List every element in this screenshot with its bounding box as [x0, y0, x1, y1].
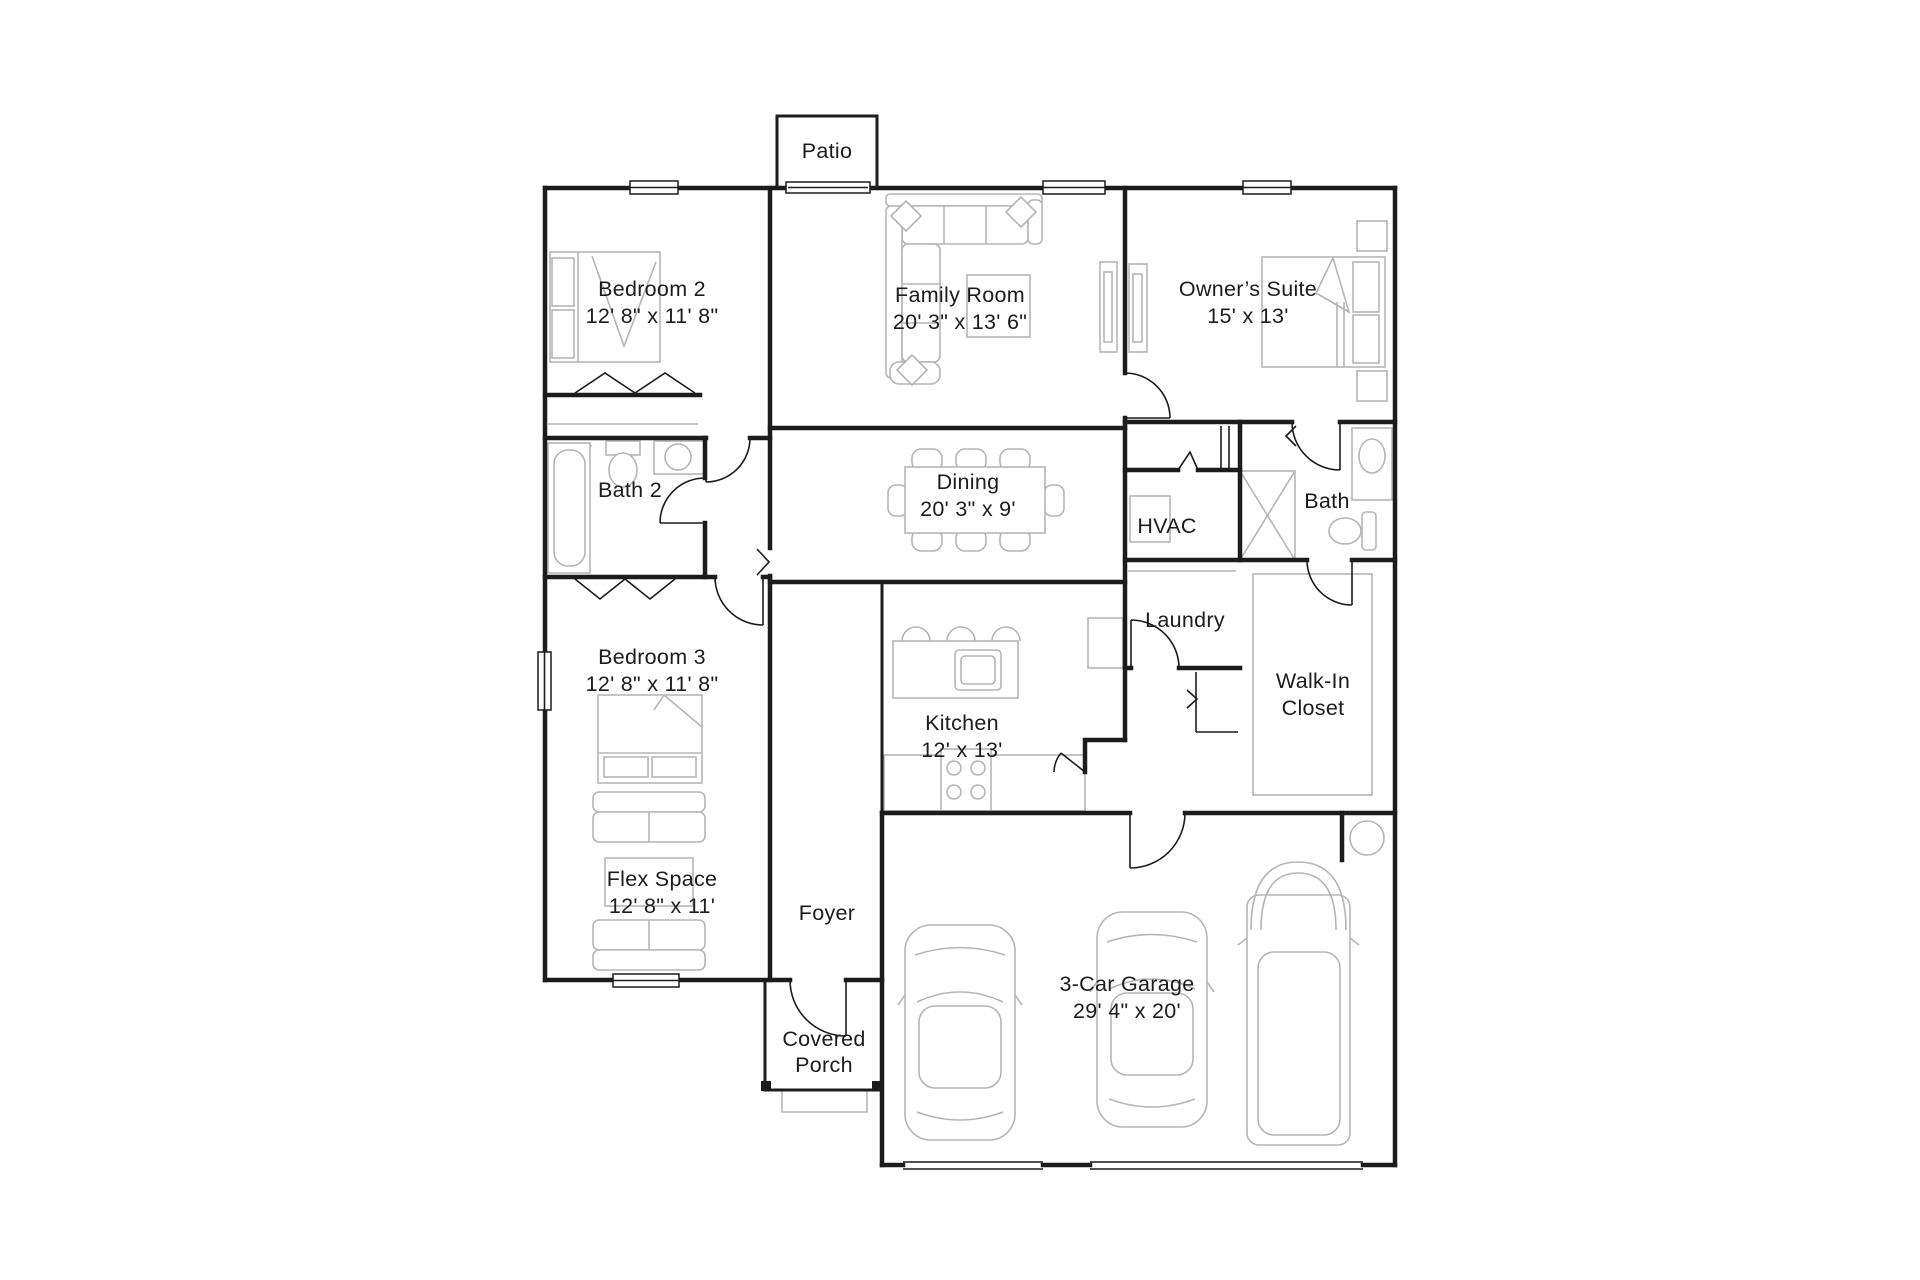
window-icon [613, 974, 679, 987]
room-dims-owners-suite: 15' x 13' [1207, 304, 1288, 328]
room-label-hvac: HVAC [1137, 514, 1196, 538]
room-label-bedroom-2: Bedroom 2 [598, 277, 706, 301]
garage-door-sills [903, 1162, 1363, 1169]
sofa-icon [593, 920, 705, 970]
door-icon [706, 438, 750, 482]
fridge-icon [1088, 618, 1123, 668]
room-label-covered-porch-2: Porch [795, 1053, 853, 1077]
room-label-laundry: Laundry [1145, 608, 1225, 632]
opening-chevron-icon [757, 549, 769, 575]
room-dims-bedroom-2: 12' 8" x 11' 8" [586, 304, 719, 328]
bathtub-icon [548, 443, 590, 573]
room-label-patio: Patio [802, 139, 853, 163]
car-icon [898, 925, 1022, 1140]
room-label-family-room: Family Room [895, 283, 1025, 307]
bed-icon [598, 695, 702, 783]
porch-step [782, 1090, 867, 1112]
door-icon [1307, 560, 1352, 605]
kitchen-island-icon [893, 627, 1020, 698]
linen-closet-shelves [1221, 426, 1229, 468]
shower-icon [1240, 471, 1295, 560]
door-icon [1286, 422, 1340, 470]
room-label-walk-in-closet-2: Closet [1282, 696, 1345, 720]
floor-plan-drawing: Patio Bedroom 2 12' 8" x 11' 8" Family R… [0, 0, 1920, 1280]
mud-closet-walls [1196, 672, 1238, 732]
window-icon [538, 652, 551, 710]
water-heater-icon [1350, 821, 1384, 855]
door-icon [1125, 373, 1170, 418]
bifold-closet-icon [575, 579, 675, 599]
room-dims-flex-space: 12' 8" x 11' [609, 894, 715, 918]
room-label-walk-in-closet: Walk-In [1276, 669, 1350, 693]
room-dims-garage: 29' 4" x 20' [1073, 999, 1181, 1023]
room-label-garage: 3-Car Garage [1059, 972, 1194, 996]
room-dims-kitchen: 12' x 13' [921, 738, 1002, 762]
room-label-covered-porch: Covered [782, 1027, 865, 1051]
floor-plan-page: Patio Bedroom 2 12' 8" x 11' 8" Family R… [0, 0, 1920, 1280]
room-label-foyer: Foyer [799, 901, 855, 925]
door-icon [715, 577, 763, 625]
room-label-bedroom-3: Bedroom 3 [598, 645, 706, 669]
room-dims-bedroom-3: 12' 8" x 11' 8" [586, 672, 719, 696]
patio-door-icon [786, 182, 870, 193]
vanity-sink-icon [1352, 428, 1392, 500]
door-icon [1130, 813, 1185, 868]
door-icon [660, 478, 705, 523]
room-label-dining: Dining [937, 470, 1000, 494]
suv-icon [1238, 862, 1359, 1145]
toilet-icon [1329, 512, 1376, 550]
bifold-closet-icon [575, 373, 695, 393]
sofa-icon [593, 792, 705, 842]
door-ajar-icon [1178, 452, 1198, 470]
room-label-bath-2: Bath 2 [598, 478, 662, 502]
furniture-layer [548, 194, 1392, 1145]
sink-icon [654, 441, 704, 474]
room-dims-dining: 20' 3" x 9' [920, 497, 1016, 521]
room-label-owners-suite: Owner’s Suite [1179, 277, 1317, 301]
room-dims-family-room: 20' 3" x 13' 6" [893, 310, 1027, 334]
window-icon [630, 181, 678, 194]
room-label-bath: Bath [1304, 489, 1349, 513]
window-icon [1243, 181, 1291, 194]
room-label-flex-space: Flex Space [607, 867, 718, 891]
window-icon [1043, 181, 1105, 194]
room-label-kitchen: Kitchen [925, 711, 999, 735]
